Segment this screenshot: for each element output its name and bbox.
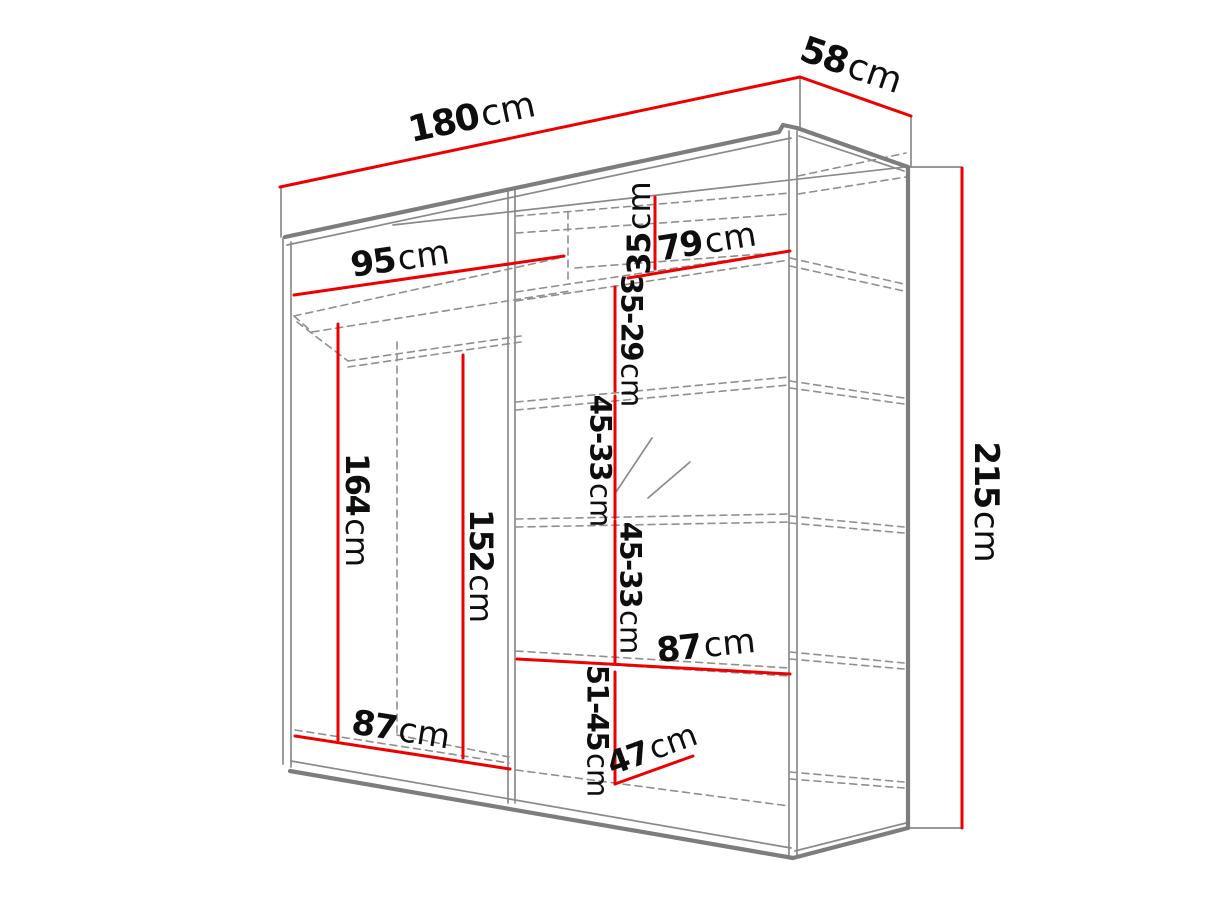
interior-dashed-line	[790, 659, 904, 669]
dimension-value: 45-33	[584, 395, 618, 480]
interior-dashed-line	[516, 514, 789, 519]
wardrobe-outline-edge	[797, 128, 908, 167]
dimension-unit: cm	[338, 518, 376, 567]
structure-thin-line	[799, 136, 904, 171]
interior-dashed-line	[348, 342, 521, 367]
wardrobe-outline-edge	[783, 125, 797, 128]
diagram-stage: 180cm58cm215cm95cm35cm79cm35-29cm45-33cm…	[0, 0, 1227, 920]
dimension-unit: cm	[614, 610, 648, 654]
dimension-unit: cm	[966, 511, 1006, 563]
dimension-unit: cm	[702, 621, 758, 666]
dimension-value: 35	[620, 233, 658, 275]
dimension-label-shelf-gap-2: 45-33cm	[586, 395, 615, 527]
dimension-label-height-total: 215cm	[969, 441, 1003, 562]
dimension-value: 164	[338, 453, 376, 515]
wardrobe-outline-edge	[793, 828, 908, 858]
interior-dashed-line	[790, 652, 904, 663]
dimension-value: 87	[349, 702, 399, 748]
interior-dashed-line	[790, 258, 904, 284]
dimension-label-shelf-gap-3: 45-33cm	[616, 522, 645, 654]
interior-dashed-line	[790, 381, 904, 398]
interior-dashed-line	[516, 770, 789, 806]
interior-dashed-line	[790, 266, 904, 291]
dimension-unit: cm	[395, 232, 452, 279]
dimension-value: 87	[655, 627, 703, 671]
dimension-label-right-width-lower: 87cm	[655, 624, 757, 668]
structure-thin-line	[616, 438, 652, 492]
dimension-value: 152	[462, 509, 500, 571]
dimension-value: 215	[966, 441, 1006, 507]
dimension-value: 51-45	[581, 665, 615, 750]
structure-thin-line	[795, 823, 906, 851]
dimension-label-shelf-gap-4: 51-45cm	[583, 665, 612, 797]
dimension-label-top-shelf-height: 35cm	[623, 181, 655, 274]
dimension-unit: cm	[620, 181, 658, 230]
interior-dashed-line	[312, 291, 570, 332]
wardrobe-outline-edge	[290, 771, 793, 858]
structure-thin-line	[648, 462, 690, 498]
dimension-value: 95	[348, 240, 397, 286]
dimension-label-rod-height: 164cm	[341, 453, 373, 567]
interior-dashed-line	[790, 523, 904, 533]
interior-dashed-line	[798, 177, 906, 194]
dimension-unit: cm	[615, 363, 649, 407]
interior-dashed-line	[516, 522, 789, 527]
dimension-value: 45-33	[614, 522, 648, 607]
interior-dashed-line	[790, 516, 904, 527]
dimension-unit: cm	[396, 710, 453, 758]
dimension-label-shelf-gap-1: 35-29cm	[617, 275, 646, 407]
dimension-unit: cm	[462, 574, 500, 623]
interior-dashed-line	[294, 316, 312, 332]
dimension-value: 35-29	[615, 275, 649, 360]
interior-dashed-line	[348, 336, 521, 361]
dimension-label-left-clear-height: 152cm	[465, 509, 497, 623]
dimension-unit: cm	[584, 483, 618, 527]
dimension-value: 79	[655, 223, 705, 269]
dimension-line-width-total	[280, 77, 800, 187]
dimension-unit: cm	[702, 214, 759, 262]
